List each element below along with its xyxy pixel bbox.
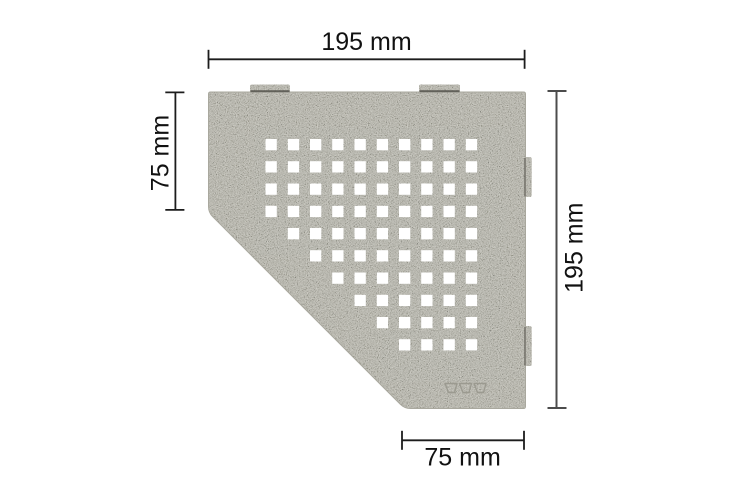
- svg-text:75 mm: 75 mm: [146, 115, 174, 191]
- svg-text:75 mm: 75 mm: [424, 444, 500, 472]
- svg-text:195 mm: 195 mm: [321, 28, 411, 56]
- svg-text:195 mm: 195 mm: [561, 203, 589, 293]
